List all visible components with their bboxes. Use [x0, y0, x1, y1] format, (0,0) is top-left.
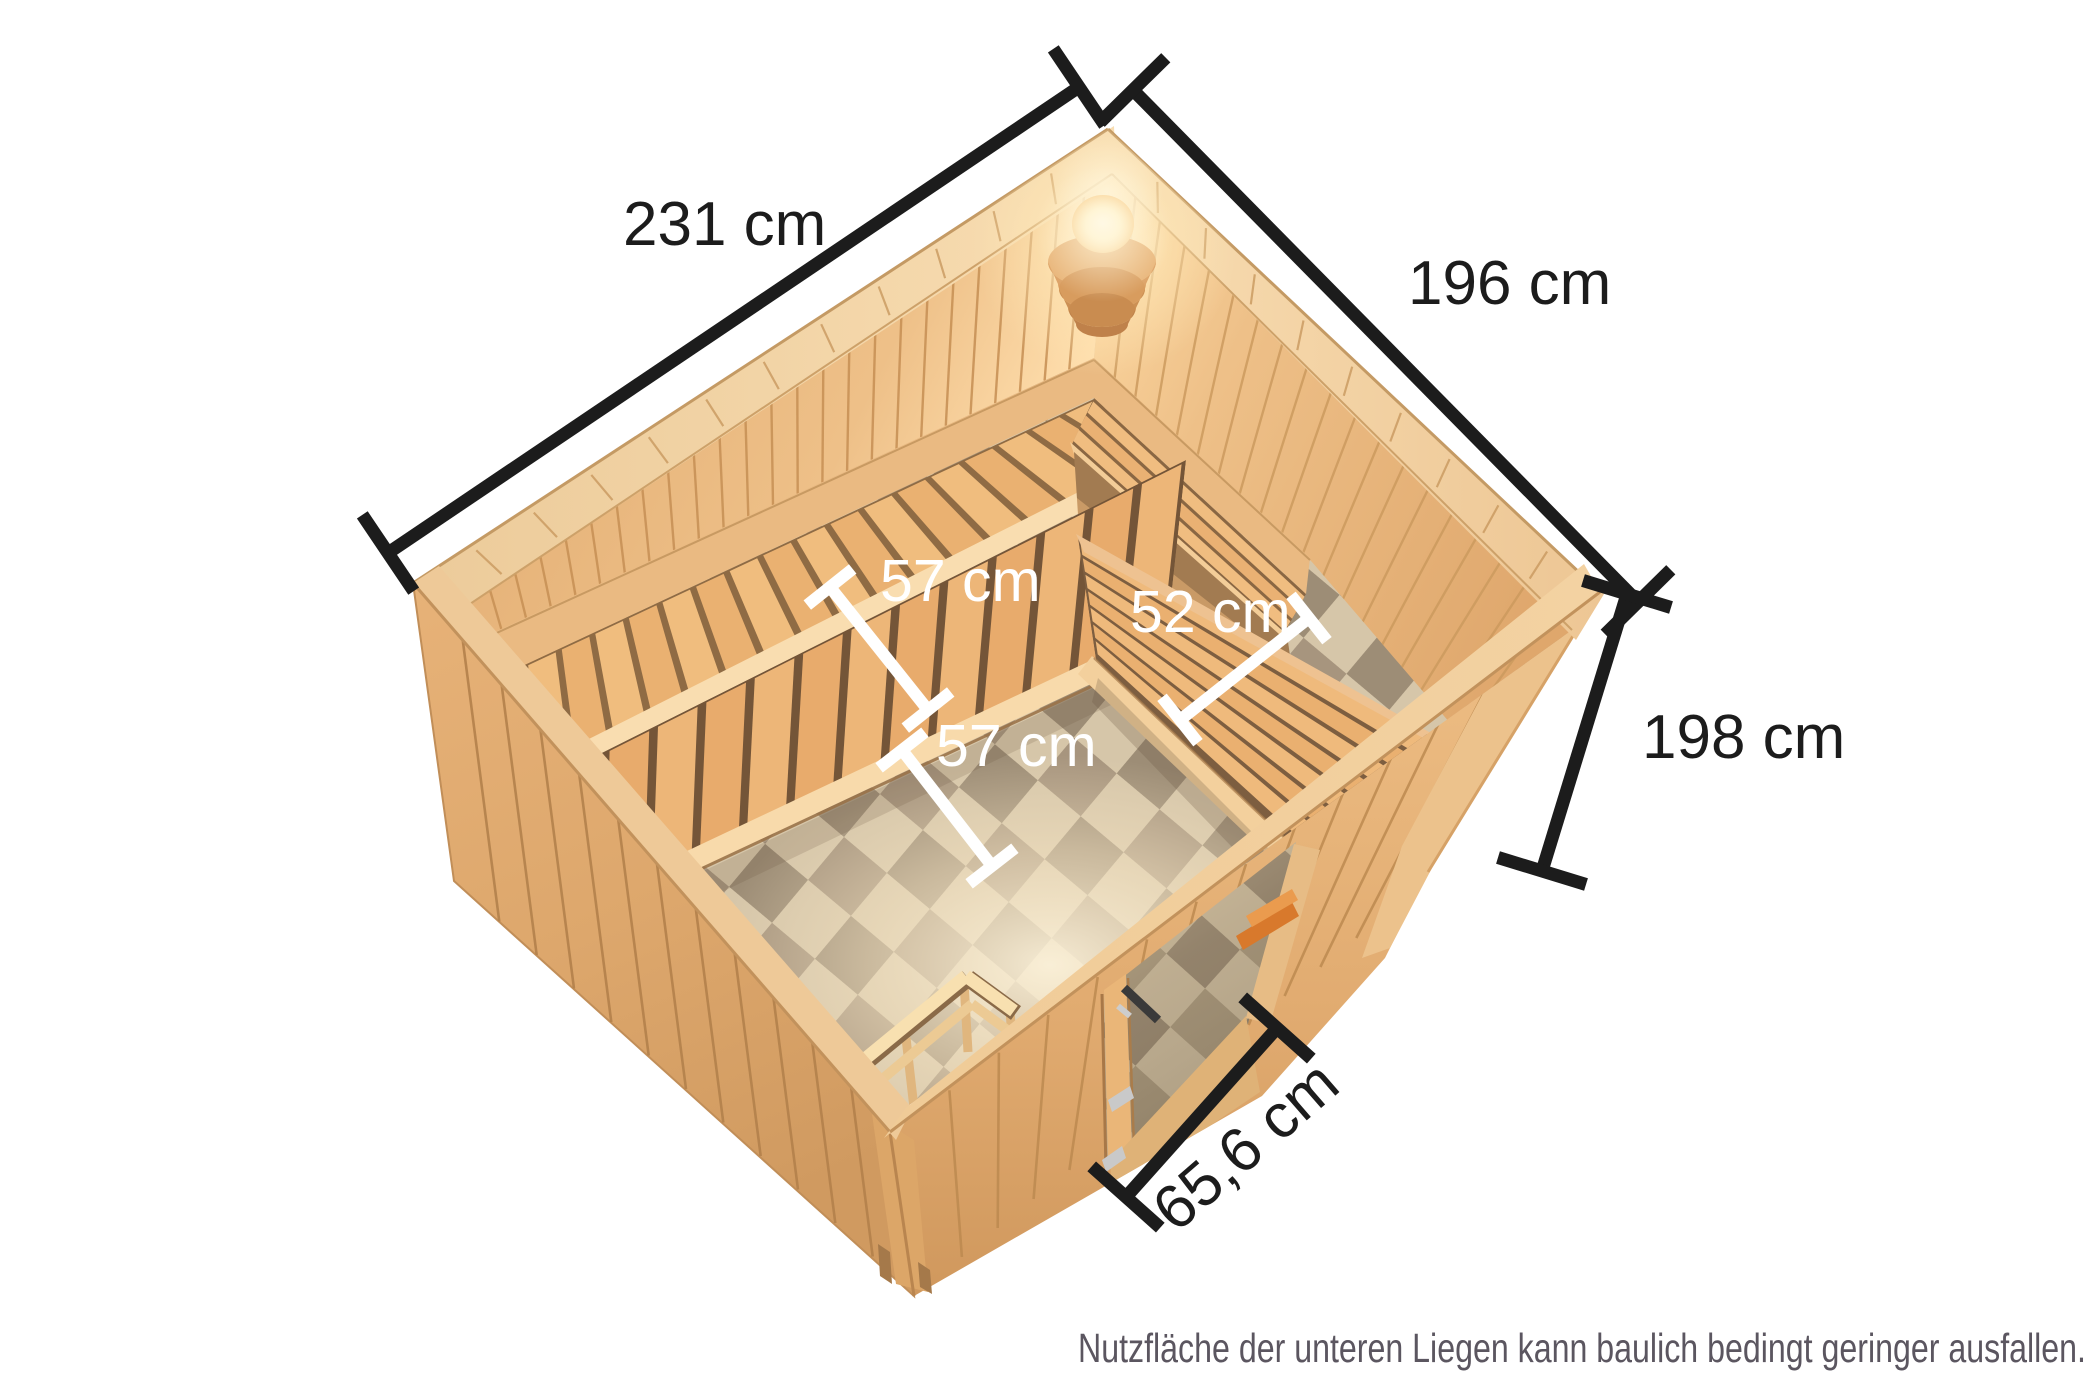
- svg-text:Nutzfläche der unteren Liegen: Nutzfläche der unteren Liegen kann bauli…: [1078, 1325, 2086, 1371]
- svg-text:231 cm: 231 cm: [623, 190, 826, 259]
- svg-text:52 cm: 52 cm: [1130, 579, 1291, 645]
- svg-text:198 cm: 198 cm: [1642, 703, 1845, 772]
- svg-text:57 cm: 57 cm: [880, 548, 1041, 614]
- svg-text:57 cm: 57 cm: [936, 713, 1097, 779]
- svg-text:196 cm: 196 cm: [1408, 249, 1611, 318]
